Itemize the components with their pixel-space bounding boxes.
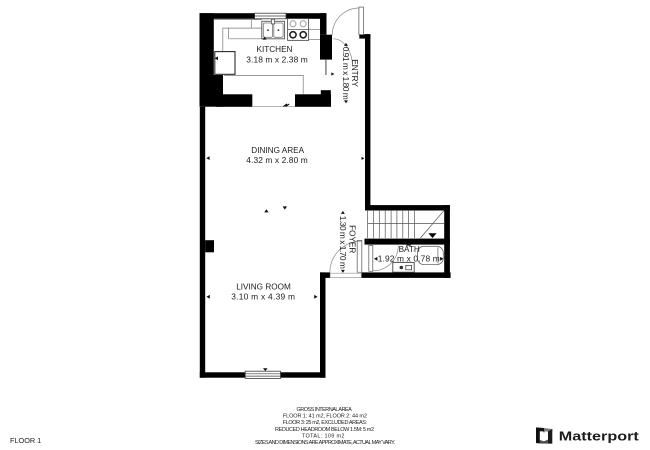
- svg-text:FLOOR 1: 41 m2, FLOOR 2: 44 m2: FLOOR 1: 41 m2, FLOOR 2: 44 m2: [283, 414, 367, 420]
- svg-text:GROSS INTERNAL AREA: GROSS INTERNAL AREA: [297, 407, 353, 413]
- svg-text:SIZES AND DIMENSIONS ARE APPRO: SIZES AND DIMENSIONS ARE APPROXIMATE, AC…: [255, 440, 395, 446]
- svg-text:1.92 m x 0.78 m: 1.92 m x 0.78 m: [378, 254, 440, 264]
- svg-text:3.18 m x 2.38 m: 3.18 m x 2.38 m: [246, 55, 308, 65]
- svg-text:3.10 m x 4.39 m: 3.10 m x 4.39 m: [231, 292, 295, 302]
- svg-text:TOTAL: 109 m2: TOTAL: 109 m2: [302, 434, 345, 440]
- svg-text:FLOOR 3: 25 m2, EXCLUDED AREAS: FLOOR 3: 25 m2, EXCLUDED AREAS:: [283, 420, 368, 426]
- svg-text:DINING AREA: DINING AREA: [251, 146, 304, 155]
- svg-text:Matterport: Matterport: [559, 429, 640, 443]
- svg-text:1.30 m x 1.70 m: 1.30 m x 1.70 m: [338, 216, 348, 269]
- svg-text:0.91 m x 1.80 m: 0.91 m x 1.80 m: [341, 47, 351, 100]
- svg-text:LIVING ROOM: LIVING ROOM: [236, 283, 291, 292]
- svg-text:FLOOR 1: FLOOR 1: [10, 436, 41, 445]
- svg-text:REDUCED HEADROOM BELOW 1.5M: 5: REDUCED HEADROOM BELOW 1.5M: 5 m2: [275, 427, 374, 433]
- svg-text:BATH: BATH: [399, 245, 420, 254]
- svg-text:4.32 m x 2.80 m: 4.32 m x 2.80 m: [246, 155, 308, 165]
- svg-text:KITCHEN: KITCHEN: [257, 45, 293, 54]
